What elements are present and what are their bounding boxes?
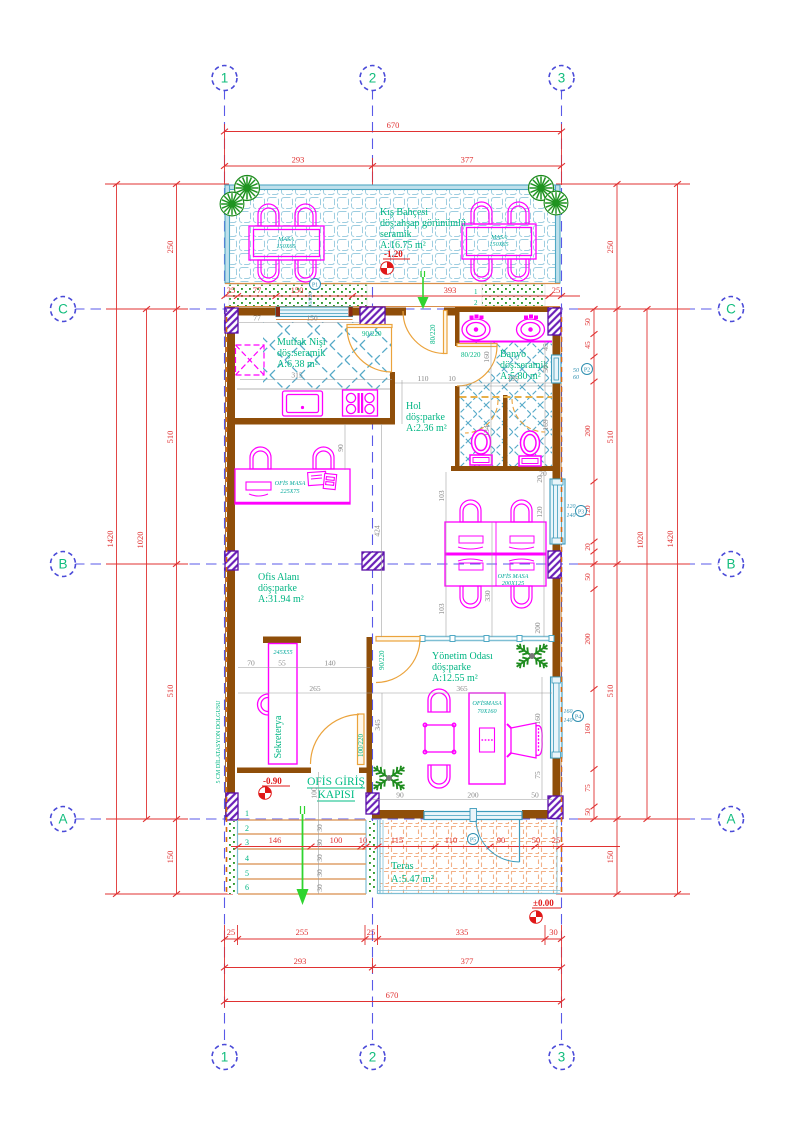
svg-text:B: B bbox=[726, 557, 735, 572]
svg-text:25: 25 bbox=[367, 927, 376, 937]
svg-text:103: 103 bbox=[437, 603, 446, 615]
svg-text:25: 25 bbox=[227, 285, 236, 295]
svg-text:150: 150 bbox=[291, 285, 304, 295]
svg-text:120: 120 bbox=[567, 504, 576, 510]
svg-text:134: 134 bbox=[482, 425, 491, 437]
svg-text:10: 10 bbox=[359, 835, 368, 845]
svg-text:140: 140 bbox=[564, 717, 573, 724]
svg-text:670: 670 bbox=[386, 990, 399, 1000]
svg-text:293: 293 bbox=[294, 956, 307, 966]
svg-text:A:6.38 m²: A:6.38 m² bbox=[277, 359, 318, 370]
svg-text:3: 3 bbox=[558, 1050, 566, 1065]
svg-text:A: A bbox=[726, 812, 735, 827]
svg-text:Kış Bahçesi: Kış Bahçesi bbox=[380, 207, 428, 218]
svg-text:30: 30 bbox=[315, 824, 324, 832]
svg-text:30: 30 bbox=[315, 854, 324, 862]
svg-text:1: 1 bbox=[221, 71, 229, 86]
svg-text:5: 5 bbox=[245, 869, 249, 878]
svg-text:200: 200 bbox=[467, 791, 479, 800]
svg-text:60: 60 bbox=[573, 375, 579, 381]
svg-text:-0.90: -0.90 bbox=[263, 776, 282, 786]
svg-text:25: 25 bbox=[552, 835, 561, 845]
svg-text:A: A bbox=[58, 812, 67, 827]
svg-text:90/220: 90/220 bbox=[362, 330, 382, 338]
svg-text:2: 2 bbox=[474, 299, 478, 307]
svg-text:1420: 1420 bbox=[665, 531, 675, 548]
svg-text:100: 100 bbox=[310, 787, 319, 799]
svg-text:Hol: Hol bbox=[406, 401, 421, 412]
svg-text:20: 20 bbox=[535, 475, 544, 483]
svg-text:Mutfak Nişi: Mutfak Nişi bbox=[277, 337, 326, 348]
svg-text:160: 160 bbox=[533, 713, 542, 725]
svg-text:255: 255 bbox=[296, 927, 309, 937]
svg-text:115: 115 bbox=[391, 835, 403, 845]
svg-text:365: 365 bbox=[456, 684, 468, 693]
svg-text:C: C bbox=[58, 302, 68, 317]
svg-text:MASA: MASA bbox=[490, 234, 507, 241]
svg-text:150: 150 bbox=[165, 851, 175, 864]
svg-text:45: 45 bbox=[583, 341, 592, 349]
svg-text:30: 30 bbox=[315, 869, 324, 877]
svg-text:90: 90 bbox=[497, 835, 506, 845]
svg-text:510: 510 bbox=[605, 685, 615, 698]
svg-text:Teras: Teras bbox=[391, 861, 414, 872]
svg-text:P2: P2 bbox=[584, 368, 590, 374]
svg-text:250: 250 bbox=[605, 241, 615, 254]
svg-text:75: 75 bbox=[533, 771, 542, 779]
svg-text:150: 150 bbox=[605, 851, 615, 864]
svg-text:345: 345 bbox=[373, 719, 382, 731]
svg-text:A:31.94 m²: A:31.94 m² bbox=[258, 594, 304, 605]
svg-text:70: 70 bbox=[247, 659, 255, 668]
svg-text:2: 2 bbox=[369, 1050, 377, 1065]
svg-text:1020: 1020 bbox=[135, 532, 145, 549]
svg-text:2: 2 bbox=[369, 71, 377, 86]
svg-text:393: 393 bbox=[444, 285, 457, 295]
svg-text:6: 6 bbox=[245, 883, 249, 892]
svg-text:245X55: 245X55 bbox=[273, 649, 292, 656]
svg-text:Banyo: Banyo bbox=[500, 349, 526, 360]
svg-text:3: 3 bbox=[558, 71, 566, 86]
svg-text:A:5.80 m²: A:5.80 m² bbox=[500, 371, 541, 382]
svg-text:20: 20 bbox=[583, 543, 592, 551]
svg-text:377: 377 bbox=[461, 956, 474, 966]
svg-text:90/220: 90/220 bbox=[378, 650, 386, 670]
svg-text:30: 30 bbox=[315, 884, 324, 892]
svg-text:Ofis Alanı: Ofis Alanı bbox=[258, 572, 300, 583]
svg-text:OFİS MASA: OFİS MASA bbox=[275, 480, 306, 487]
svg-text:döş:parke: döş:parke bbox=[406, 412, 445, 423]
svg-text:50: 50 bbox=[583, 808, 592, 816]
svg-text:330: 330 bbox=[483, 590, 492, 602]
svg-text:döş:seramik: döş:seramik bbox=[277, 348, 325, 359]
svg-text:25: 25 bbox=[552, 285, 561, 295]
svg-text:1: 1 bbox=[474, 288, 478, 296]
svg-text:50: 50 bbox=[583, 318, 592, 326]
svg-text:103: 103 bbox=[437, 490, 446, 502]
svg-text:A:2.36 m²: A:2.36 m² bbox=[406, 423, 447, 434]
svg-text:50: 50 bbox=[541, 365, 550, 373]
svg-text:1: 1 bbox=[221, 1050, 229, 1065]
svg-text:P1: P1 bbox=[312, 283, 318, 289]
svg-text:160: 160 bbox=[583, 723, 592, 735]
svg-text:110: 110 bbox=[445, 835, 457, 845]
svg-text:Sekreterya: Sekreterya bbox=[273, 715, 284, 758]
svg-text:250: 250 bbox=[165, 241, 175, 254]
svg-text:110: 110 bbox=[418, 374, 429, 383]
svg-text:670: 670 bbox=[387, 120, 400, 130]
svg-text:70X160: 70X160 bbox=[477, 708, 497, 715]
svg-text:Yönetim Odası: Yönetim Odası bbox=[432, 651, 493, 662]
svg-text:160: 160 bbox=[482, 351, 491, 363]
svg-text:döş:parke: döş:parke bbox=[432, 662, 471, 673]
svg-text:50: 50 bbox=[583, 573, 592, 581]
svg-text:200: 200 bbox=[583, 425, 592, 437]
svg-text:146: 146 bbox=[269, 835, 282, 845]
svg-text:150: 150 bbox=[306, 314, 318, 323]
svg-text:10: 10 bbox=[448, 374, 456, 383]
svg-text:OFİS GİRİŞ: OFİS GİRİŞ bbox=[307, 774, 365, 788]
svg-text:100/220: 100/220 bbox=[357, 734, 365, 757]
svg-text:265: 265 bbox=[309, 684, 321, 693]
svg-text:50: 50 bbox=[531, 791, 539, 800]
svg-text:335: 335 bbox=[456, 927, 469, 937]
svg-text:510: 510 bbox=[605, 431, 615, 444]
svg-text:150X65: 150X65 bbox=[489, 241, 508, 248]
svg-text:P3: P3 bbox=[578, 510, 584, 516]
svg-text:P5: P5 bbox=[470, 838, 476, 844]
svg-text:75: 75 bbox=[583, 784, 592, 792]
svg-text:döş:parke: döş:parke bbox=[258, 583, 297, 594]
svg-text:510: 510 bbox=[165, 431, 175, 444]
svg-text:döş:ahşap görünümlü: döş:ahşap görünümlü bbox=[380, 218, 466, 229]
svg-text:2: 2 bbox=[245, 824, 249, 833]
svg-text:169: 169 bbox=[541, 419, 550, 431]
svg-text:150X65: 150X65 bbox=[276, 243, 295, 250]
svg-text:5 CM DİLATASYON DOLGUSU: 5 CM DİLATASYON DOLGUSU bbox=[215, 700, 222, 784]
svg-text:1420: 1420 bbox=[105, 531, 115, 548]
svg-text:seramik: seramik bbox=[380, 229, 412, 240]
svg-text:3: 3 bbox=[245, 838, 249, 847]
svg-text:B: B bbox=[58, 557, 67, 572]
svg-text:A:12.55 m²: A:12.55 m² bbox=[432, 673, 478, 684]
svg-text:±0.00: ±0.00 bbox=[533, 898, 554, 908]
svg-text:1020: 1020 bbox=[635, 532, 645, 549]
svg-text:80/220: 80/220 bbox=[429, 324, 437, 344]
svg-text:55: 55 bbox=[278, 659, 286, 668]
svg-text:1: 1 bbox=[245, 809, 249, 818]
svg-text:30: 30 bbox=[315, 839, 324, 847]
svg-text:100: 100 bbox=[330, 835, 343, 845]
svg-text:315: 315 bbox=[291, 371, 303, 380]
svg-text:293: 293 bbox=[292, 155, 305, 165]
svg-text:OFİSMASA: OFİSMASA bbox=[472, 700, 501, 707]
svg-text:30: 30 bbox=[549, 927, 558, 937]
svg-text:200: 200 bbox=[533, 622, 542, 634]
svg-text:KAPISI: KAPISI bbox=[317, 789, 354, 801]
svg-text:50: 50 bbox=[532, 835, 541, 845]
svg-text:200: 200 bbox=[583, 633, 592, 645]
svg-text:140: 140 bbox=[567, 512, 576, 519]
svg-text:377: 377 bbox=[461, 155, 474, 165]
svg-text:195: 195 bbox=[507, 374, 519, 383]
svg-text:A:5.47 m²: A:5.47 m² bbox=[391, 874, 434, 885]
svg-text:140: 140 bbox=[324, 659, 336, 668]
svg-text:90: 90 bbox=[336, 444, 345, 452]
svg-text:OFİS MASA: OFİS MASA bbox=[498, 573, 529, 580]
svg-text:90: 90 bbox=[396, 791, 404, 800]
svg-text:225X75: 225X75 bbox=[280, 488, 299, 495]
svg-text:510: 510 bbox=[165, 685, 175, 698]
svg-text:4: 4 bbox=[245, 854, 249, 863]
svg-text:MASA: MASA bbox=[277, 236, 294, 243]
svg-text:45: 45 bbox=[541, 343, 550, 351]
svg-text:424: 424 bbox=[373, 525, 382, 537]
svg-text:50: 50 bbox=[573, 368, 579, 374]
svg-text:80/220: 80/220 bbox=[461, 351, 481, 359]
svg-text:-1.20: -1.20 bbox=[384, 249, 403, 259]
svg-text:160: 160 bbox=[564, 709, 573, 715]
svg-text:25: 25 bbox=[227, 927, 236, 937]
svg-text:77: 77 bbox=[253, 285, 262, 295]
svg-text:P4: P4 bbox=[575, 715, 581, 721]
svg-text:77: 77 bbox=[253, 314, 261, 323]
svg-text:120: 120 bbox=[535, 506, 544, 518]
svg-text:C: C bbox=[726, 302, 736, 317]
